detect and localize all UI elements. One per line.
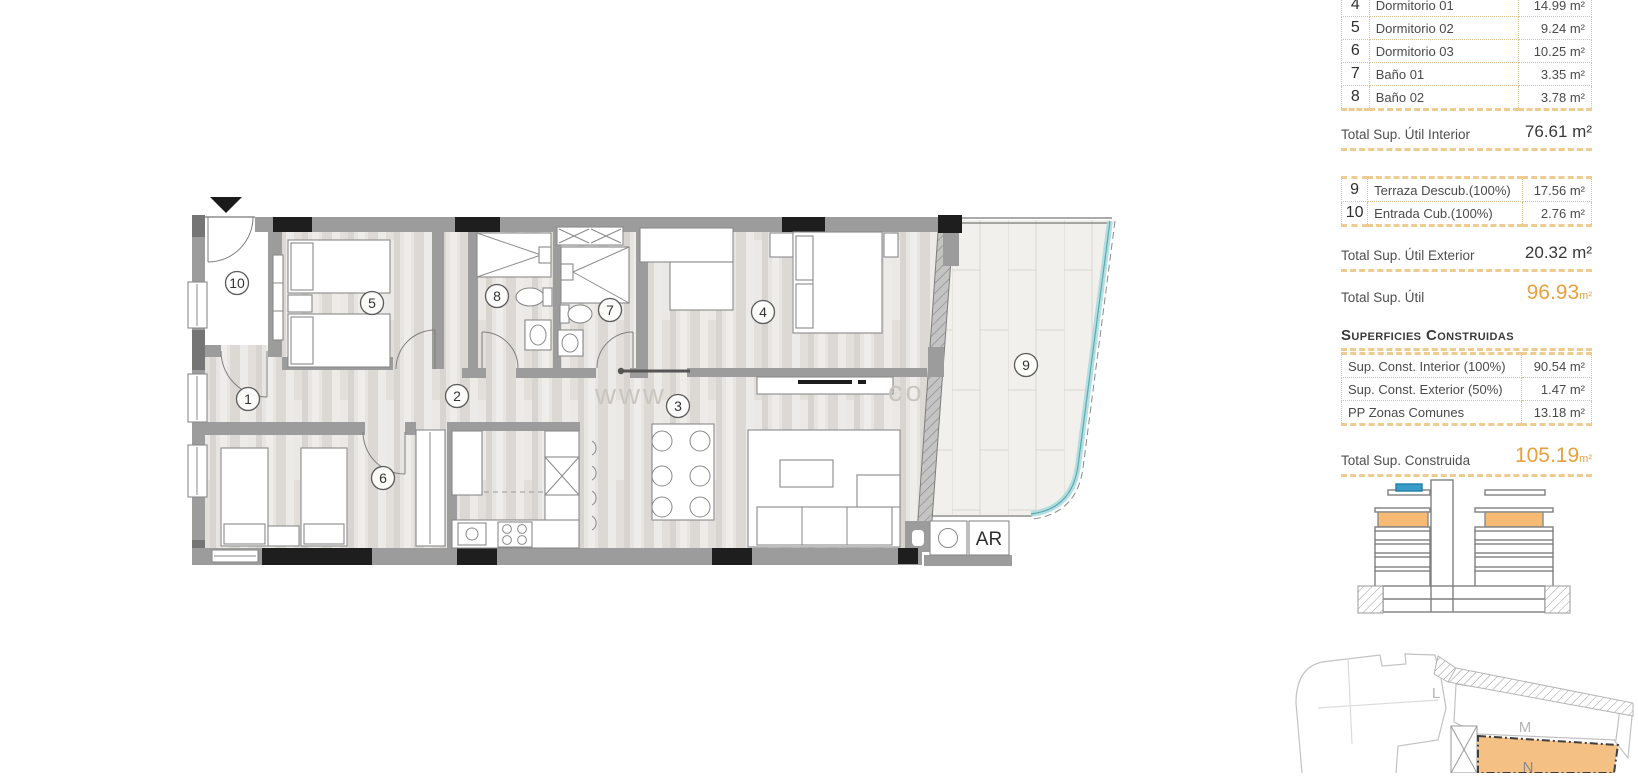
total-util-value: 96.93m² — [1527, 281, 1592, 305]
room-area-value: 17.56 m² — [1523, 178, 1592, 202]
room-area-value: 9.24 m² — [1519, 17, 1592, 40]
areas-panel: 4Dormitorio 0114.99 m²5Dormitorio 029.24… — [1270, 0, 1638, 773]
room-label: Dormitorio 02 — [1369, 17, 1518, 40]
room-area-value: 14.99 m² — [1519, 0, 1592, 17]
area-row: 8Baño 023.78 m² — [1342, 86, 1592, 110]
total-exterior-row: Total Sup. Útil Exterior 20.32 m² — [1341, 243, 1592, 272]
room-marker-number: 2 — [453, 388, 461, 404]
exterior-areas-table: 9Terraza Descub.(100%)17.56 m²10Entrada … — [1341, 176, 1592, 227]
total-construida-label: Total Sup. Construida — [1341, 453, 1470, 468]
constructed-areas-table: Sup. Const. Interior (100%)90.54 m²Sup. … — [1341, 352, 1592, 426]
room-label: Entrada Cub.(100%) — [1368, 202, 1523, 226]
block-l-label: L — [1432, 685, 1440, 702]
window-icon — [212, 550, 258, 562]
room-label: PP Zonas Comunes — [1342, 401, 1522, 425]
room-area-value: 1.47 m² — [1522, 378, 1592, 401]
area-row: 7Baño 013.35 m² — [1342, 63, 1592, 86]
room-area-value: 90.54 m² — [1522, 354, 1592, 378]
room-number: 8 — [1342, 86, 1370, 110]
area-row: Sup. Const. Exterior (50%)1.47 m² — [1342, 378, 1592, 401]
total-exterior-value: 20.32 m² — [1525, 243, 1592, 263]
ar-unit-label: AR — [976, 529, 1002, 550]
room-number: 6 — [1342, 40, 1370, 63]
area-row: 4Dormitorio 0114.99 m² — [1342, 0, 1592, 17]
area-row: 6Dormitorio 0310.25 m² — [1342, 40, 1592, 63]
room-marker-number: 6 — [379, 470, 387, 486]
total-exterior-label: Total Sup. Útil Exterior — [1341, 248, 1475, 263]
room-marker-number: 9 — [1022, 357, 1030, 373]
room-marker-number: 8 — [493, 288, 501, 304]
room-area-value: 10.25 m² — [1519, 40, 1592, 63]
dining-table — [652, 424, 714, 520]
block-m-label: M — [1519, 719, 1532, 736]
room-label: Terraza Descub.(100%) — [1368, 178, 1523, 202]
highlighted-block-n — [1478, 736, 1618, 773]
room-area-value: 3.35 m² — [1519, 63, 1592, 86]
entry-arrow-icon — [210, 197, 242, 213]
area-row: Sup. Const. Interior (100%)90.54 m² — [1342, 354, 1592, 378]
floor-plan: AR www. co 12345678910 — [0, 0, 1160, 773]
room-area-value: 13.18 m² — [1522, 401, 1592, 425]
window-icon — [188, 445, 207, 497]
tv-unit — [757, 377, 893, 394]
page: AR www. co 12345678910 4Dormitorio 0114.… — [0, 0, 1638, 773]
floor-plan-area: AR www. co 12345678910 — [0, 0, 1160, 773]
building-section-diagram — [1353, 478, 1577, 638]
area-row: 10Entrada Cub.(100%)2.76 m² — [1342, 202, 1592, 226]
total-interior-row: Total Sup. Útil Interior 76.61 m² — [1341, 122, 1592, 151]
room-label: Baño 02 — [1369, 86, 1518, 110]
block-n-label: N — [1523, 759, 1534, 773]
room-label: Dormitorio 03 — [1369, 40, 1518, 63]
total-construida-row: Total Sup. Construida 105.19m² — [1341, 444, 1592, 477]
interior-areas-table: 4Dormitorio 0114.99 m²5Dormitorio 029.24… — [1341, 0, 1592, 111]
window-icon — [188, 282, 207, 328]
room-label: Sup. Const. Interior (100%) — [1342, 354, 1522, 378]
constructed-heading: Superficies Construidas — [1341, 327, 1592, 351]
room-marker-number: 7 — [606, 302, 614, 318]
room-marker-number: 10 — [229, 275, 245, 291]
room-number: 7 — [1342, 63, 1370, 86]
sofa — [748, 430, 900, 547]
room-marker-number: 5 — [368, 295, 376, 311]
total-construida-value: 105.19m² — [1515, 444, 1592, 468]
terrace-units: AR — [930, 521, 1009, 555]
room-number: 10 — [1342, 202, 1368, 226]
room-number: 5 — [1342, 17, 1370, 40]
site-key-plan: L M N — [1288, 648, 1636, 773]
svg-text:co: co — [888, 376, 925, 408]
room-number: 9 — [1342, 178, 1368, 202]
room-label: Baño 01 — [1369, 63, 1518, 86]
area-row: PP Zonas Comunes13.18 m² — [1342, 401, 1592, 425]
room-label: Sup. Const. Exterior (50%) — [1342, 378, 1522, 401]
room-label: Dormitorio 01 — [1369, 0, 1518, 17]
total-interior-value: 76.61 m² — [1525, 122, 1592, 142]
window-icon — [188, 374, 207, 422]
area-row: 9Terraza Descub.(100%)17.56 m² — [1342, 178, 1592, 202]
total-util-label: Total Sup. Útil — [1341, 290, 1424, 305]
room-area-value: 2.76 m² — [1523, 202, 1592, 226]
room-marker-number: 4 — [759, 304, 767, 320]
room-area-value: 3.78 m² — [1519, 86, 1592, 110]
total-interior-label: Total Sup. Útil Interior — [1341, 127, 1470, 142]
svg-text:www.: www. — [594, 379, 676, 411]
area-row: 5Dormitorio 029.24 m² — [1342, 17, 1592, 40]
total-util-row: Total Sup. Útil 96.93m² — [1341, 281, 1592, 311]
room-marker-number: 1 — [244, 391, 252, 407]
room-number: 4 — [1342, 0, 1370, 17]
room-marker-number: 3 — [674, 398, 682, 414]
